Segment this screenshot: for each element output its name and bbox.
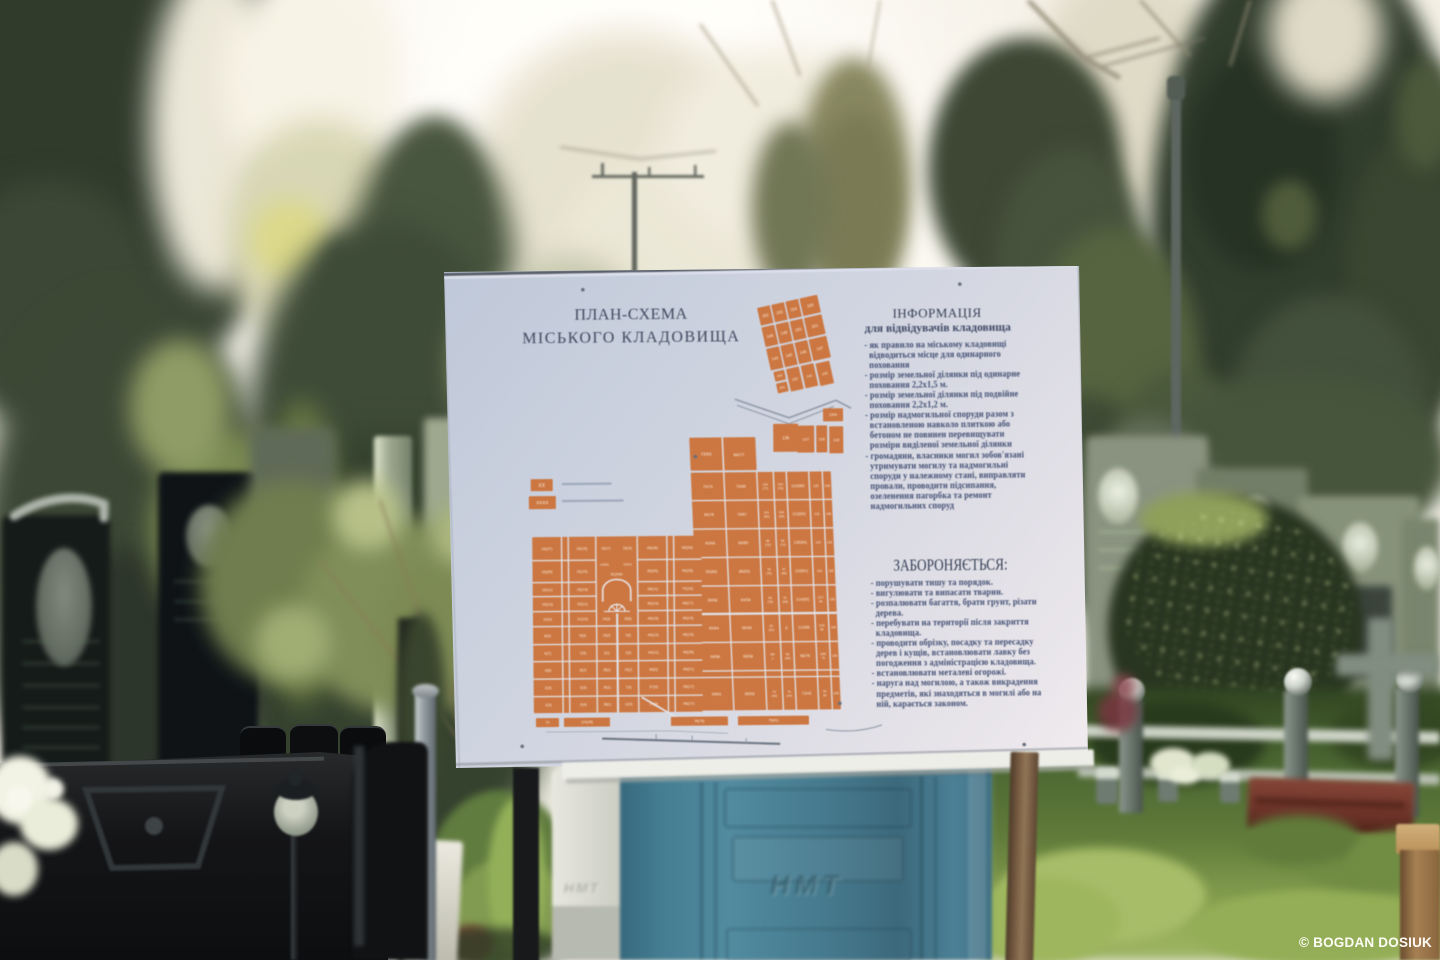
svg-text:79: 79 (821, 656, 825, 660)
svg-text:16(17): 16(17) (601, 547, 610, 551)
svg-text:1(10): 1(10) (625, 702, 632, 706)
svg-text:35(20): 35(20) (647, 569, 659, 573)
svg-text:(77): (77) (763, 486, 769, 490)
svg-text:(44): (44) (786, 694, 792, 698)
svg-text:121: 121 (814, 512, 820, 516)
svg-text:(61): (61) (769, 628, 775, 632)
svg-text:119: 119 (817, 569, 822, 573)
svg-text:75(91): 75(91) (769, 719, 779, 723)
svg-text:48(17): 48(17) (682, 601, 694, 605)
svg-text:132: 132 (828, 569, 834, 573)
svg-text:96/58: 96/58 (742, 625, 752, 630)
svg-text:133: 133 (829, 597, 835, 601)
svg-text:(75): (75) (766, 572, 772, 576)
svg-text:84/58: 84/58 (741, 597, 751, 602)
svg-text:90: 90 (819, 599, 823, 603)
svg-text:126(94): 126(94) (793, 540, 807, 545)
svg-text:66/58: 66/58 (708, 597, 718, 602)
svg-text:129: 129 (833, 438, 839, 442)
svg-text:(68): (68) (781, 571, 787, 575)
svg-text:96(78): 96(78) (695, 719, 705, 723)
svg-text:16(95): 16(95) (542, 570, 554, 574)
svg-text:(83): (83) (779, 514, 785, 518)
svg-text:45(28): 45(28) (647, 546, 659, 550)
svg-text:23(2): 23(2) (603, 633, 610, 637)
svg-text:96: 96 (820, 628, 824, 632)
svg-text:127: 127 (802, 436, 809, 441)
svg-text:75/89: 75/89 (736, 484, 746, 489)
svg-text:74: 74 (546, 721, 550, 725)
svg-text:48(19): 48(19) (683, 632, 695, 636)
svg-text:ХХХХ: ХХХХ (536, 500, 548, 505)
svg-text:45(12): 45(12) (648, 633, 660, 637)
svg-text:2(1): 2(1) (604, 651, 610, 655)
svg-text:7(4): 7(4) (626, 685, 632, 689)
svg-text:55(26): 55(26) (682, 568, 694, 572)
svg-text:114(92): 114(92) (796, 596, 810, 601)
svg-text:15(12): 15(12) (542, 602, 554, 606)
svg-text:25(6): 25(6) (624, 617, 631, 621)
svg-text:59/61: 59/61 (712, 691, 722, 696)
svg-text:70(16): 70(16) (682, 586, 694, 590)
svg-text:38(9): 38(9) (649, 668, 659, 672)
svg-text:65/56: 65/56 (705, 541, 715, 546)
svg-text:113/98: 113/98 (798, 625, 810, 630)
svg-text:18(14): 18(14) (577, 587, 589, 591)
svg-text:125: 125 (813, 484, 819, 488)
svg-text:46(21): 46(21) (683, 667, 695, 671)
svg-text:45(15): 45(15) (647, 616, 659, 620)
svg-text:(74): (74) (780, 543, 786, 547)
svg-text:17(9): 17(9) (649, 702, 659, 706)
svg-text:58/98: 58/98 (710, 654, 720, 659)
svg-text:94/77: 94/77 (733, 452, 745, 457)
svg-text:28(1): 28(1) (604, 703, 611, 707)
svg-text:130: 130 (826, 512, 832, 516)
svg-text:10(9): 10(9) (543, 617, 553, 621)
svg-text:15(21): 15(21) (623, 562, 632, 566)
svg-text:(78): (78) (778, 486, 784, 490)
svg-text:4(6): 4(6) (545, 669, 553, 673)
svg-text:98/76: 98/76 (800, 653, 810, 658)
svg-text:45(14): 45(14) (647, 601, 659, 605)
svg-text:3(3): 3(3) (580, 686, 588, 690)
svg-text:98/58: 98/58 (745, 691, 755, 696)
svg-text:123(95): 123(95) (792, 511, 806, 516)
svg-text:38(11): 38(11) (647, 587, 658, 591)
svg-text:128: 128 (825, 484, 831, 488)
svg-text:(45): (45) (785, 656, 791, 660)
svg-text:2(4): 2(4) (580, 703, 588, 707)
svg-text:86(63): 86(63) (739, 569, 751, 574)
svg-text:(82): (82) (764, 514, 770, 518)
svg-text:XX: XX (538, 483, 545, 489)
svg-text:96(17): 96(17) (683, 702, 695, 706)
svg-text:16(37): 16(37) (541, 547, 553, 551)
svg-text:8(9): 8(9) (544, 634, 552, 638)
svg-text:135: 135 (832, 654, 838, 658)
svg-text:(73): (73) (765, 543, 771, 547)
svg-text:1(3): 1(3) (545, 703, 553, 707)
svg-text:18(16): 18(16) (576, 547, 588, 551)
svg-text:65(80): 65(80) (706, 569, 718, 574)
svg-text:8(2): 8(2) (580, 668, 588, 672)
svg-text:56(28): 56(28) (682, 546, 694, 550)
svg-text:68/60: 68/60 (738, 540, 749, 545)
svg-text:128: 128 (819, 437, 825, 441)
svg-text:26(1): 26(1) (603, 686, 610, 690)
svg-text:15(11): 15(11) (577, 602, 588, 606)
svg-text:11(10): 11(10) (577, 617, 588, 621)
svg-text:124(96): 124(96) (791, 483, 805, 488)
svg-text:84: 84 (823, 693, 827, 697)
svg-text:7(9): 7(9) (579, 651, 587, 655)
svg-text:28(1): 28(1) (603, 668, 610, 672)
svg-text:134: 134 (831, 626, 837, 630)
svg-text:6(7): 6(7) (544, 651, 552, 655)
svg-text:136: 136 (782, 435, 790, 440)
svg-text:45(28): 45(28) (683, 650, 695, 654)
svg-text:73/93: 73/93 (700, 451, 712, 456)
svg-text:75/75: 75/75 (703, 484, 713, 489)
svg-text:37(9): 37(9) (649, 685, 659, 689)
svg-text:15(19): 15(19) (577, 569, 589, 573)
svg-text:96/58: 96/58 (743, 654, 753, 659)
svg-text:65/76: 65/76 (704, 512, 714, 517)
svg-text:96(17): 96(17) (683, 685, 695, 689)
svg-text:31(34)А: 31(34)А (610, 572, 623, 576)
svg-text:79/67: 79/67 (737, 512, 747, 517)
svg-text:24(3): 24(3) (603, 617, 610, 621)
svg-text:136: 136 (833, 691, 839, 695)
svg-text:122: 122 (816, 541, 822, 545)
svg-text:13(20): 13(20) (600, 562, 609, 566)
svg-text:1(4): 1(4) (625, 651, 631, 655)
svg-text:(76): (76) (767, 600, 773, 604)
svg-text:131: 131 (827, 541, 833, 545)
svg-text:126А: 126А (829, 413, 838, 417)
svg-text:123(45): 123(45) (581, 720, 593, 724)
svg-text:23(2): 23(2) (625, 668, 632, 672)
svg-text:(44): (44) (771, 694, 777, 698)
svg-text:2(3): 2(3) (545, 686, 553, 690)
svg-text:15(16): 15(16) (623, 546, 632, 550)
svg-text:116(91): 116(91) (795, 568, 809, 573)
svg-text:40(11): 40(11) (648, 650, 659, 654)
svg-text:9(9): 9(9) (579, 634, 587, 638)
svg-text:16(11): 16(11) (542, 588, 553, 592)
svg-text:65/84: 65/84 (709, 626, 720, 631)
svg-text:73/42: 73/42 (802, 690, 812, 695)
svg-text:(58): (58) (782, 600, 788, 604)
svg-text:46(19): 46(19) (682, 616, 694, 620)
svg-text:7(6): 7(6) (625, 633, 631, 637)
